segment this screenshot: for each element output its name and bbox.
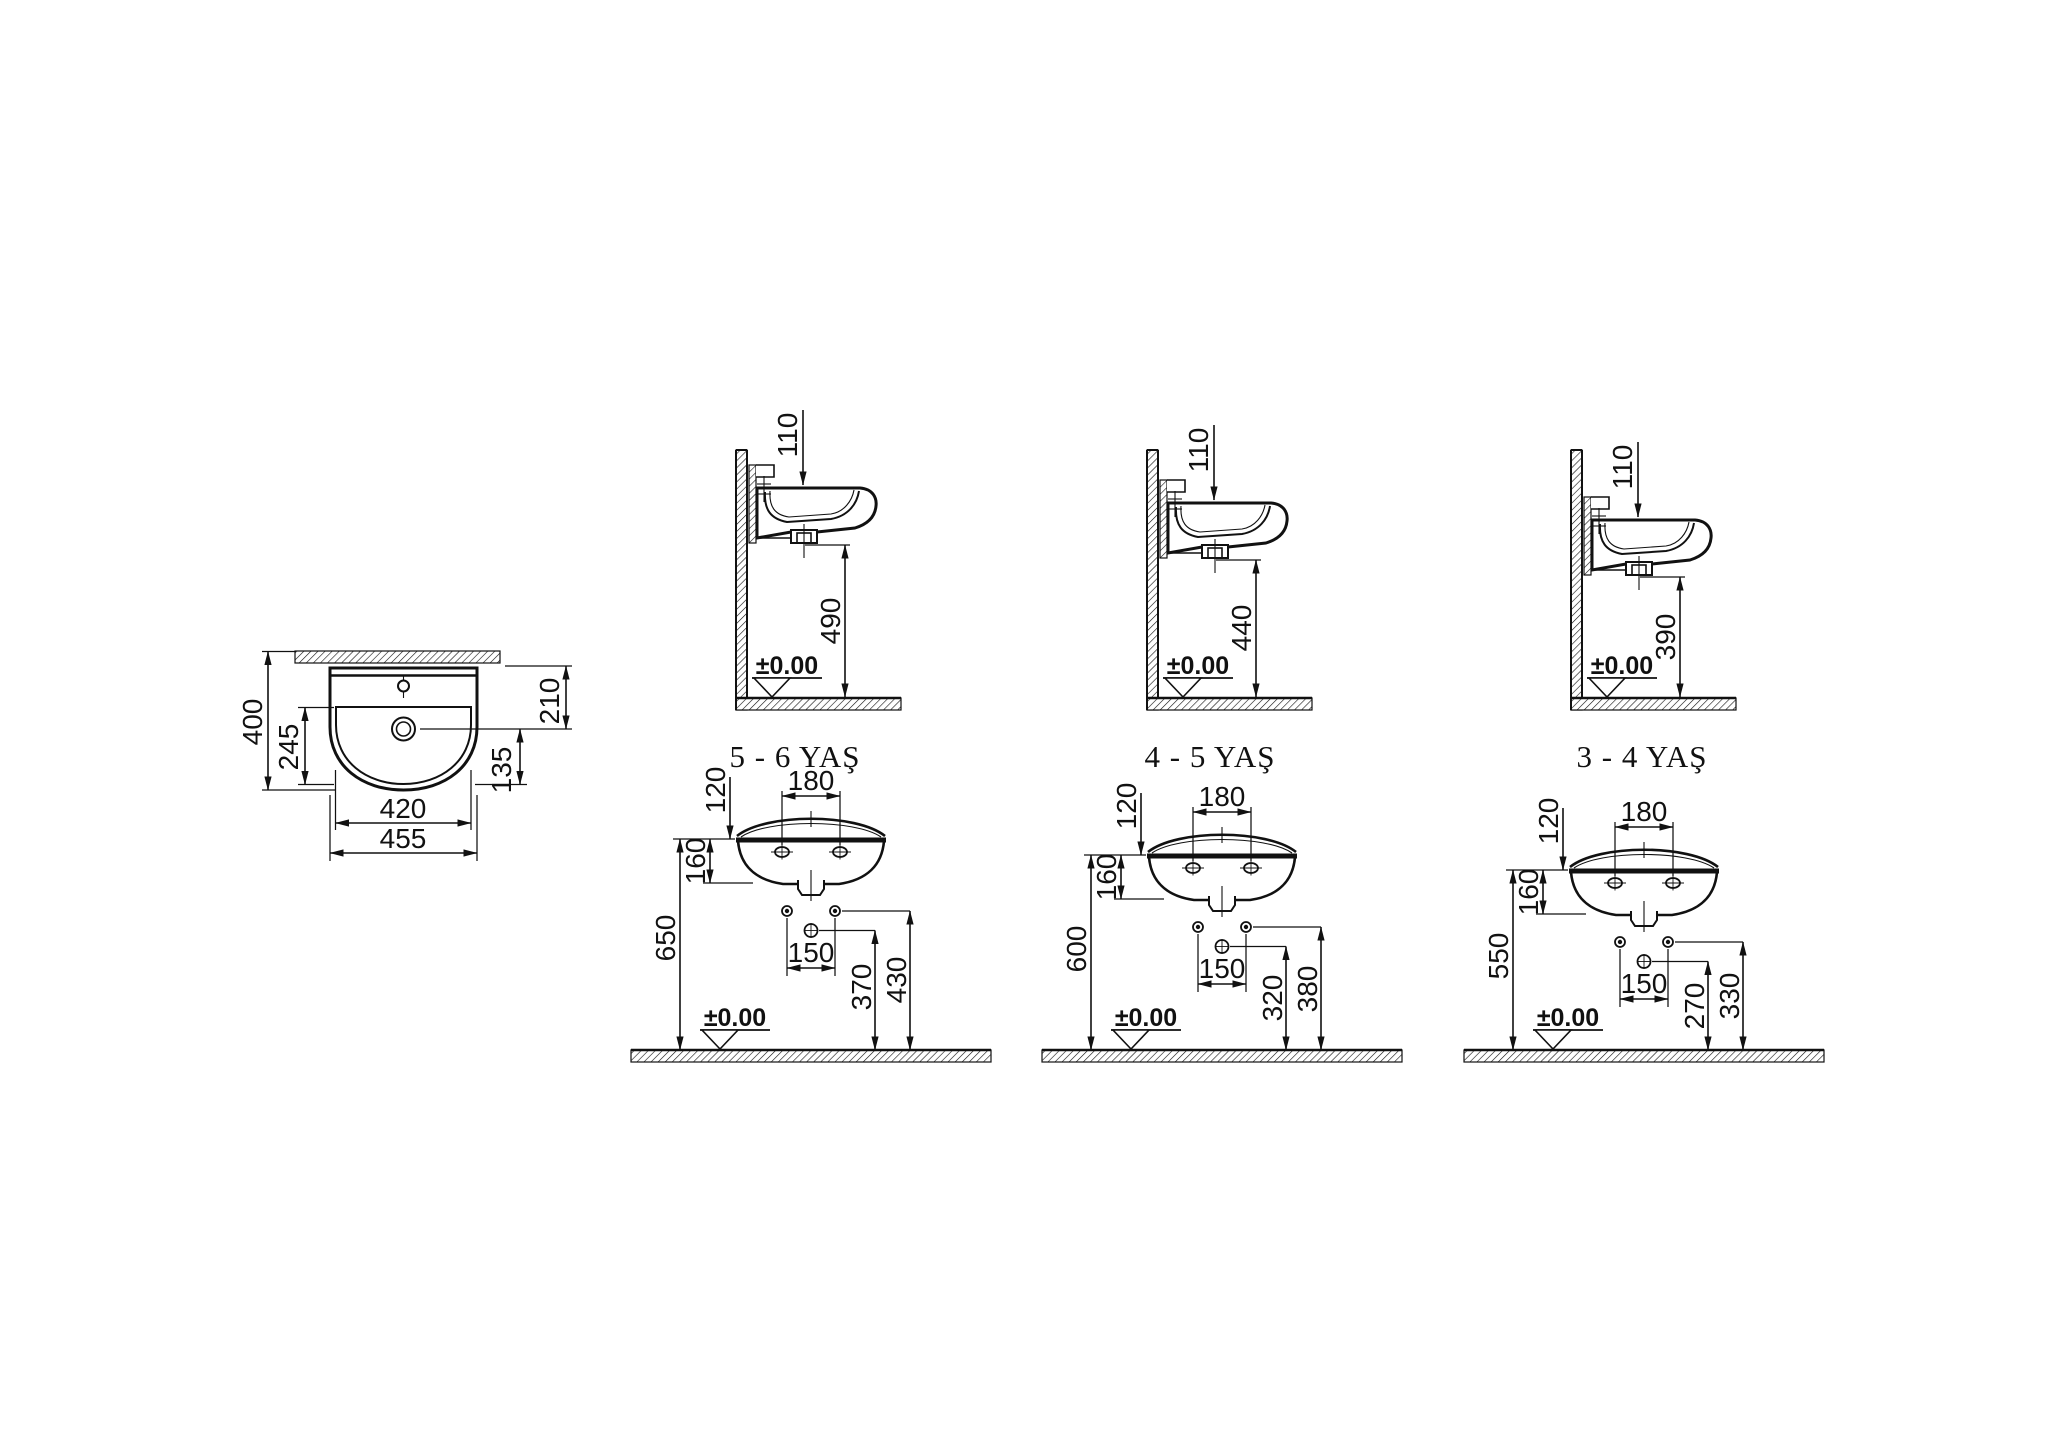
dim-body-height-label: 160	[1091, 854, 1122, 901]
front-view-5-6: 180 120 160 650 150 430 370 ±0.00	[631, 765, 991, 1062]
dim-tap-offset-label: 110	[1607, 445, 1638, 490]
age-label: 4 - 5 YAŞ	[1144, 739, 1275, 774]
front-view-3-4: 180 120 160 550 150 330 270 ±0.00	[1464, 796, 1824, 1062]
dim-body-height-label: 160	[1513, 869, 1544, 916]
datum-label: ±0.00	[1167, 652, 1229, 680]
dim-tap-offset-label: 110	[1183, 428, 1214, 473]
dim-body-height-label: 160	[680, 838, 711, 885]
side-view-5-6: 110 490 ±0.00 5 - 6 YAŞ	[729, 410, 901, 774]
dim-bowl-depth-label: 245	[273, 724, 304, 771]
dim-rim-height-label: 650	[650, 915, 681, 962]
dim-tap-spacing-label: 180	[1199, 781, 1246, 812]
dim-tap-spacing-label: 180	[788, 765, 835, 796]
dim-splash-height-label: 120	[700, 767, 731, 814]
dim-supply-spacing-label: 150	[788, 937, 835, 968]
plan-view: 400 245 210 135 420 455	[237, 651, 572, 861]
age-label: 3 - 4 YAŞ	[1576, 739, 1707, 774]
dim-mount-height-label: 390	[1650, 614, 1681, 661]
dim-bowl-width-label: 420	[380, 793, 427, 824]
dim-splash-height-label: 120	[1111, 783, 1142, 830]
dim-drain-supply-height-label: 320	[1257, 975, 1288, 1022]
dim-drain-supply-height-label: 270	[1679, 983, 1710, 1030]
side-view-4-5: 110 440 ±0.00 4 - 5 YAŞ	[1144, 425, 1312, 774]
front-view-4-5: 180 120 160 600 150 380 320 ±0.00	[1042, 781, 1402, 1062]
dim-water-supply-height-label: 330	[1714, 973, 1745, 1020]
children-washbasin-installation-drawing: 400 245 210 135 420 455 110 490 ±0.00 5 …	[0, 0, 2048, 1449]
datum-label: ±0.00	[756, 652, 818, 680]
dim-overall-width-label: 455	[380, 823, 427, 854]
datum-label: ±0.00	[1537, 1004, 1599, 1032]
dim-rim-height-label: 600	[1061, 926, 1092, 973]
dim-tap-spacing-label: 180	[1621, 796, 1668, 827]
dim-supply-spacing-label: 150	[1199, 953, 1246, 984]
dim-water-supply-height-label: 380	[1292, 966, 1323, 1013]
dim-drain-supply-height-label: 370	[846, 964, 877, 1011]
dim-splash-height-label: 120	[1533, 798, 1564, 845]
dim-mount-height-label: 490	[815, 598, 846, 645]
dim-drain-to-front-label: 135	[486, 747, 517, 794]
dim-tap-offset-label: 110	[772, 413, 803, 458]
tap-hole	[398, 681, 409, 692]
dim-back-to-drain-label: 210	[534, 678, 565, 725]
wall-hatch	[295, 651, 500, 663]
datum-label: ±0.00	[704, 1004, 766, 1032]
dim-supply-spacing-label: 150	[1621, 968, 1668, 999]
datum-label: ±0.00	[1115, 1004, 1177, 1032]
dim-rim-height-label: 550	[1483, 933, 1514, 980]
dim-overall-depth-label: 400	[237, 699, 268, 746]
side-view-3-4: 110 390 ±0.00 3 - 4 YAŞ	[1571, 442, 1736, 774]
drain-hole-outer	[392, 718, 415, 741]
dim-water-supply-height-label: 430	[881, 957, 912, 1004]
dim-mount-height-label: 440	[1226, 605, 1257, 652]
datum-label: ±0.00	[1591, 652, 1653, 680]
